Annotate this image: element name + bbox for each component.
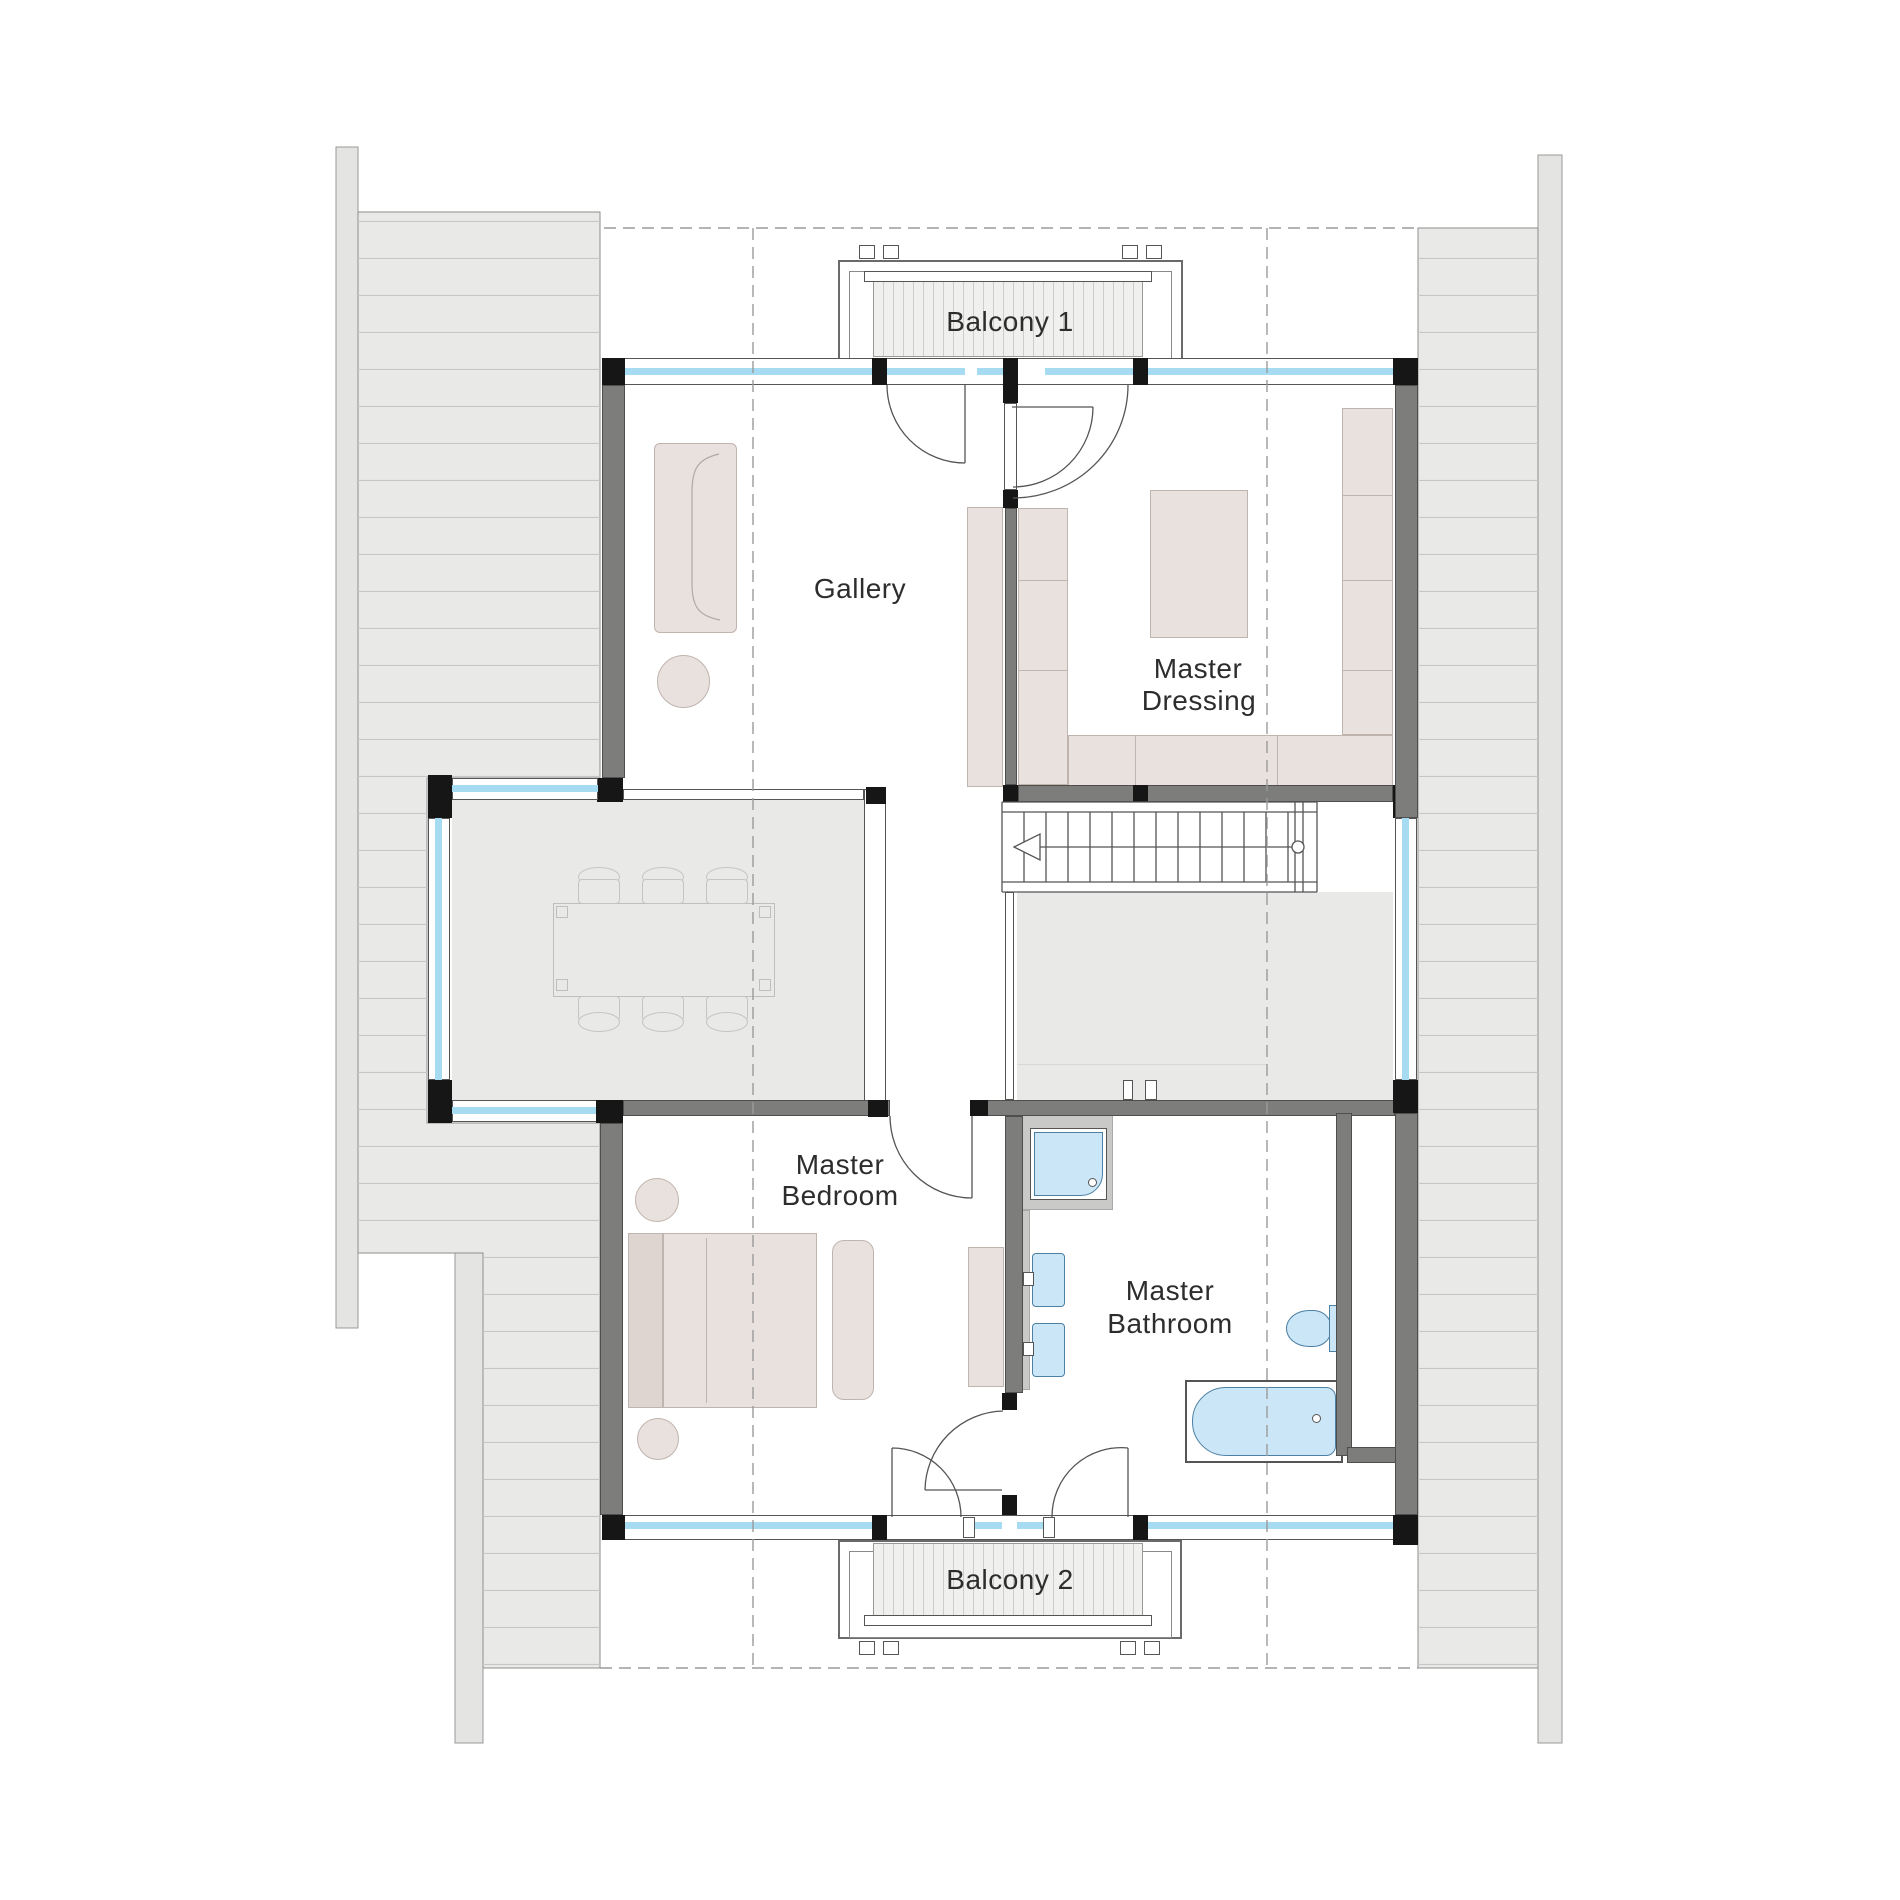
door-balcony2-bedroom (892, 1448, 961, 1517)
wall-post (1003, 358, 1018, 403)
dressing-wardrobe-right (1342, 408, 1393, 735)
balcony2-rail (864, 1615, 1152, 1626)
sink-2-faucet (1023, 1342, 1034, 1356)
corner-post (1393, 358, 1418, 385)
stool-cap (642, 1012, 684, 1032)
bedside-table-top (635, 1178, 679, 1222)
table-corner-mark (759, 979, 771, 991)
door-bedroom (890, 1116, 972, 1198)
wall-post (866, 787, 886, 804)
east-wall-lower (1395, 1113, 1418, 1515)
balcony2-foot (883, 1641, 899, 1655)
bedroom-bathroom-divider (1005, 1116, 1023, 1393)
wall-post (1133, 1515, 1148, 1540)
bedside-table-bottom (637, 1418, 679, 1460)
door-jamb (963, 1517, 975, 1538)
window-glazing (452, 785, 598, 792)
stair-direction-origin (1292, 841, 1304, 853)
toilet-bowl (1286, 1310, 1332, 1347)
shower-drain (1088, 1178, 1097, 1187)
stool (706, 879, 748, 904)
sink-1-faucet (1023, 1272, 1034, 1286)
wardrobe-division (1277, 735, 1278, 790)
corner-post (1393, 1515, 1418, 1545)
dining-table-below (553, 903, 775, 997)
shower-screen-stub (1145, 1080, 1157, 1100)
bathroom-inner-wall (1336, 1113, 1352, 1456)
roof-eave-strip-left-upper (336, 147, 358, 1328)
bathtub-drain (1312, 1414, 1321, 1423)
wall-post (872, 1515, 887, 1540)
wall-post (597, 778, 623, 802)
wall-post (1003, 785, 1018, 802)
table-corner-mark (556, 906, 568, 918)
label-master-dressing-line1: Master (1154, 653, 1243, 685)
window-glazing (625, 1522, 872, 1529)
balcony2-foot (1120, 1641, 1136, 1655)
label-master-bathroom-line2: Bathroom (1107, 1308, 1232, 1340)
stool-cap (706, 1012, 748, 1032)
window-glazing (1148, 1522, 1393, 1529)
wall-post (1133, 358, 1148, 385)
roof-right-hatch (1418, 228, 1538, 1668)
wall-post (872, 358, 887, 385)
east-wall-upper (1395, 385, 1418, 818)
window-glazing (625, 368, 872, 375)
sink-1 (1032, 1253, 1065, 1307)
wall-post (1003, 490, 1018, 508)
gallery-coffee-table (657, 655, 710, 708)
wardrobe-division (1342, 580, 1393, 581)
wall-post (970, 1100, 988, 1116)
wardrobe-division (1342, 495, 1393, 496)
void-glass-partition-right (864, 789, 886, 1102)
roof-eave-strip-right (1538, 155, 1562, 1743)
dressing-door-leaf-open (1004, 403, 1017, 490)
void-over-living-floor (1017, 892, 1393, 1100)
dressing-wardrobe-bottom (1068, 735, 1393, 790)
balcony1-foot (859, 245, 875, 259)
label-balcony-1: Balcony 1 (946, 306, 1073, 338)
door-bathroom-vestibule (925, 1411, 1003, 1490)
label-master-bedroom-line2: Bedroom (781, 1180, 898, 1212)
wardrobe-division (1018, 580, 1068, 581)
shower-screen-stub (1123, 1080, 1133, 1100)
void-glass-partition-top (623, 789, 864, 800)
window-glazing (1045, 368, 1133, 375)
gallery-dressing-divider-wall (1005, 508, 1017, 785)
door-balcony1-right-swing (1013, 385, 1128, 498)
bathroom-north-wall (975, 1100, 1395, 1116)
stool (642, 879, 684, 904)
corner-post (602, 1515, 625, 1540)
door-balcony2-bathroom (1052, 1448, 1128, 1517)
corner-post (602, 358, 625, 385)
bay-corner-post (428, 1080, 452, 1123)
stair-direction-arrow-icon (1014, 834, 1040, 860)
dressing-south-wall (1018, 785, 1393, 802)
wardrobe-division (1342, 670, 1393, 671)
bathroom-stub-wall (1347, 1447, 1397, 1463)
table-corner-mark (759, 906, 771, 918)
void-edge-line (1017, 1064, 1267, 1065)
wardrobe-division (1018, 670, 1068, 671)
bedroom-west-wall (600, 1123, 623, 1515)
window-glazing (1148, 368, 1393, 375)
bed-pillow-line (706, 1238, 707, 1403)
bed-mattress (663, 1233, 817, 1408)
label-balcony-2: Balcony 2 (946, 1564, 1073, 1596)
balcony2-foot (859, 1641, 875, 1655)
label-master-bedroom-line1: Master (796, 1149, 885, 1181)
window-glazing (887, 368, 965, 375)
balcony1-rail (864, 271, 1152, 282)
roof-right-hatch-lines (1418, 228, 1538, 1668)
label-master-bathroom-line1: Master (1126, 1275, 1215, 1307)
sink-2 (1032, 1323, 1065, 1377)
balcony1-foot (1122, 245, 1138, 259)
label-master-dressing-line2: Dressing (1142, 685, 1256, 717)
label-gallery: Gallery (814, 573, 906, 605)
roof-eave-strip-left-lower (455, 1253, 483, 1743)
stool (578, 879, 620, 904)
wall-post (1133, 785, 1148, 802)
table-corner-mark (556, 979, 568, 991)
gallery-sofa (654, 443, 737, 633)
staircase (1002, 802, 1317, 892)
window-glazing (1402, 818, 1409, 1080)
bedroom-north-wall (623, 1100, 890, 1116)
wall-post (596, 1100, 623, 1123)
wall-post (1393, 1080, 1418, 1113)
door-balcony1-left (887, 385, 965, 463)
gallery-cabinet (967, 507, 1003, 787)
window-glazing (452, 1107, 597, 1114)
dressing-wardrobe-left (1018, 508, 1068, 785)
dressing-island (1150, 490, 1248, 638)
wall-post (1002, 1393, 1017, 1410)
wall-post (868, 1100, 888, 1117)
bedroom-dresser (968, 1247, 1004, 1387)
bedroom-bench (832, 1240, 874, 1400)
balcony2-foot (1144, 1641, 1160, 1655)
wardrobe-division (1135, 735, 1136, 790)
bay-corner-post (428, 775, 452, 818)
balcony1-foot (1146, 245, 1162, 259)
void-railing (1005, 892, 1014, 1100)
window-glazing (975, 1522, 1002, 1529)
balcony1-foot (883, 245, 899, 259)
floor-plan-canvas: Balcony 1 Gallery Master Dressing Master… (0, 0, 1900, 1900)
window-glazing (435, 818, 442, 1080)
stool-cap (578, 1012, 620, 1032)
window-glazing (977, 368, 1003, 375)
door-dressing (1012, 407, 1093, 487)
bed-headboard (628, 1233, 663, 1408)
door-jamb (1043, 1517, 1055, 1538)
window-glazing (1017, 1522, 1043, 1529)
gallery-west-wall (602, 385, 625, 778)
